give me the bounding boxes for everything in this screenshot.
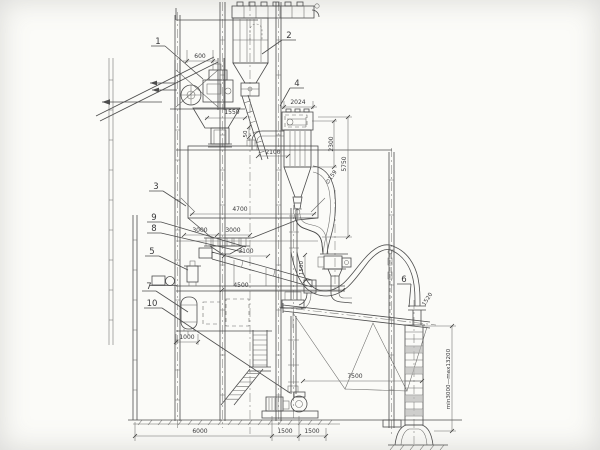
storage-silo (181, 140, 325, 254)
dimension-bend-radius: 1520 (422, 292, 435, 308)
callout-2-text: 2 (286, 31, 291, 41)
loading-boom (283, 303, 430, 328)
dimension-collector-width: 2024 (280, 99, 317, 109)
airlock-valve (295, 210, 300, 215)
aux-pump (150, 276, 177, 286)
staircase (221, 330, 271, 405)
dim-silo-width-text: 4700 (232, 206, 247, 213)
dim-boom-span-text: 7500 (347, 373, 362, 380)
roots-blower (262, 386, 318, 418)
callout-6: 6 (397, 275, 411, 307)
bag-filter (232, 2, 319, 96)
dimension-wall-offset: 1000 (174, 334, 200, 345)
dust-skirt (388, 425, 448, 445)
dim-pipe-dia-text: ∅159 (325, 169, 339, 186)
callout-8-text: 8 (151, 224, 156, 234)
dimension-chute-travel: min3000—max13200 (424, 324, 456, 433)
dimension-boom-span: 7500 (301, 373, 424, 383)
dim-cyclone-drop-text: 5750 (341, 156, 348, 171)
callout-10-text: 10 (147, 299, 158, 309)
callout-4-text: 4 (294, 79, 299, 89)
dim-wall-offset-text: 1000 (179, 334, 194, 341)
dimension-hoist-width: 600 (183, 50, 217, 63)
building-grid-centerlines (178, 2, 437, 444)
skip-hoist-unit (96, 57, 240, 147)
blower-motor (266, 397, 283, 411)
dimension-hopper-width: 1550 (205, 109, 247, 120)
vent-filter (184, 261, 201, 286)
dimension-bays: 3000 3000 (182, 227, 252, 237)
dim-duct-drop-text: 2100 (265, 149, 280, 156)
dim-chute-offset-text: 50 (243, 130, 249, 138)
filter-hopper-cone (233, 63, 268, 83)
filter-bag-outline (250, 24, 262, 40)
dim-hoist-width-text: 600 (194, 53, 206, 60)
dim-riser-height-text: 1500 (299, 260, 305, 275)
callout-5: 5 (145, 247, 188, 270)
callout-6-text: 6 (401, 275, 406, 285)
dimension-platform-span: 4500 (220, 282, 345, 292)
callout-9-text: 9 (151, 213, 156, 223)
callout-1-text: 1 (155, 37, 160, 47)
dim-base-bay1-text: 1500 (277, 428, 292, 435)
foundation-hatch (138, 420, 444, 450)
callout-7-text: 7 (146, 282, 151, 292)
dim-chute-travel-text: min3000—max13200 (446, 348, 452, 409)
engineering-drawing: 600 1550 50 2024 2100 2300 5750 4700 300 (0, 0, 600, 450)
dimension-pipe-dia: ∅159 (325, 169, 339, 186)
callout-5-text: 5 (149, 247, 154, 257)
callout-3: 3 (149, 182, 186, 206)
collector-body (284, 130, 311, 167)
drawing-page: 600 1550 50 2024 2100 2300 5750 4700 300 (0, 0, 600, 450)
dim-bay-left-text: 3000 (192, 227, 207, 234)
reserved-equipment-outline (203, 299, 249, 326)
callout-10: 10 (144, 299, 290, 393)
dim-bay-right-text: 3000 (225, 227, 240, 234)
exhaust-elbow (312, 10, 319, 17)
screw-motor (199, 248, 212, 258)
secondary-collector (282, 109, 313, 214)
callout-3-text: 3 (153, 182, 158, 192)
dim-bend-radius-text: 1520 (422, 292, 435, 308)
dim-base-bay2-text: 1500 (304, 428, 319, 435)
dim-platform-span-text: 4500 (233, 282, 248, 289)
callout-2: 2 (262, 31, 296, 54)
dim-base-main-text: 6000 (192, 428, 207, 435)
dim-hopper-width-text: 1550 (224, 109, 239, 116)
dimension-collector-height: 2300 (312, 119, 337, 169)
dim-collector-width-text: 2024 (290, 99, 305, 106)
filter-body (233, 18, 268, 63)
cyclone-cone (284, 167, 311, 197)
dim-collector-height-text: 2300 (328, 136, 335, 151)
